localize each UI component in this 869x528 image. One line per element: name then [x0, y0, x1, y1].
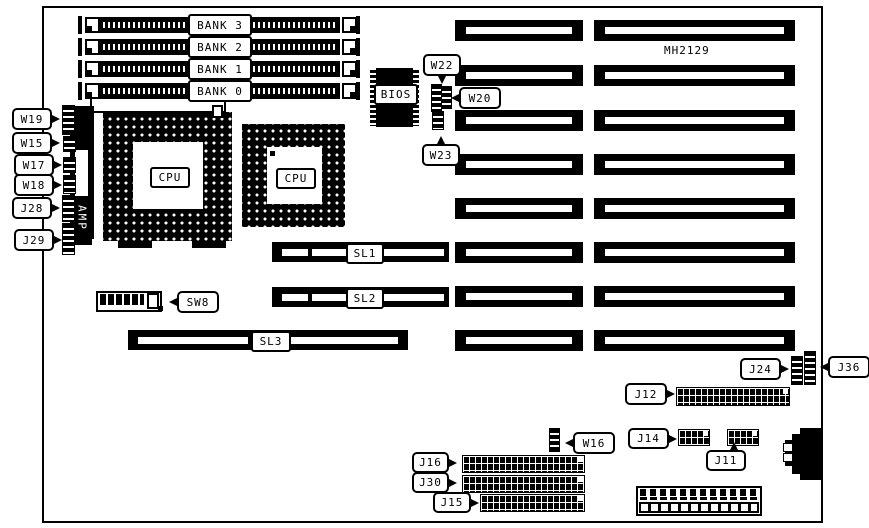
isa-slot — [594, 20, 795, 41]
socket-foot — [118, 241, 152, 248]
slot-stripe — [384, 249, 444, 256]
callout-j12: J12 — [625, 383, 667, 405]
header-j12 — [676, 387, 790, 406]
callout-w18: W18 — [14, 174, 54, 196]
simm-clip — [342, 39, 357, 55]
sl3-label: SL3 — [251, 331, 291, 352]
power-connector-teeth — [640, 489, 758, 496]
pin1-marker — [578, 477, 583, 482]
bank1-label: BANK 1 — [188, 58, 252, 80]
keyboard-connector-notch — [783, 443, 793, 452]
jumper-w15 — [63, 136, 76, 152]
simm-clip — [78, 16, 82, 34]
arrow-icon — [52, 160, 62, 170]
callout-j14: J14 — [628, 428, 669, 449]
jumper-j24 — [791, 356, 803, 385]
jumper-w18 — [63, 175, 76, 194]
isa-slot — [455, 154, 583, 175]
isa-slot — [455, 242, 583, 263]
socket-foot — [72, 239, 92, 245]
arrow-icon — [451, 93, 461, 103]
jumper-j29 — [62, 223, 75, 255]
arrow-icon — [50, 138, 60, 148]
callout-w22: W22 — [423, 54, 461, 76]
simm-slot — [100, 61, 188, 77]
pin1-marker — [578, 457, 583, 462]
arrow-icon — [779, 364, 789, 374]
slot-stripe — [282, 249, 308, 256]
isa-slot — [594, 110, 795, 131]
callout-w15: W15 — [12, 132, 52, 154]
amp-window — [75, 150, 88, 196]
isa-slot — [594, 286, 795, 307]
header-j14 — [678, 429, 710, 446]
dip-switch-mark — [158, 306, 163, 311]
callout-sw8: SW8 — [177, 291, 219, 313]
simm-clip — [85, 39, 100, 55]
bank3-label: BANK 3 — [188, 14, 252, 36]
slot-stripe — [312, 294, 348, 301]
simm-clip — [78, 38, 82, 56]
arrow-icon — [447, 458, 457, 468]
power-connector-dashes — [640, 497, 758, 500]
sl2-label: SL2 — [346, 288, 384, 309]
arrow-icon — [169, 297, 179, 307]
isa-slot — [594, 65, 795, 86]
simm-slot — [100, 39, 188, 55]
slot-stripe — [138, 337, 248, 344]
pin1-dot — [270, 151, 275, 156]
jumper-w23 — [432, 111, 444, 130]
cpu2-label: CPU — [276, 168, 316, 189]
isa-slot — [594, 154, 795, 175]
arrow-icon — [447, 478, 457, 488]
isa-slot — [594, 198, 795, 219]
pin1-marker — [578, 496, 583, 501]
arrow-icon — [469, 498, 479, 508]
socket-foot — [192, 241, 226, 248]
arrow-icon — [665, 389, 675, 399]
callout-j11: J11 — [706, 450, 746, 471]
isa-slot — [455, 330, 583, 351]
bank0-label: BANK 0 — [188, 80, 252, 102]
jumper-w17 — [63, 157, 76, 173]
slot-stripe — [312, 249, 348, 256]
header-j15 — [480, 494, 585, 512]
isa-slot — [455, 110, 583, 131]
pin1-marker — [783, 389, 788, 394]
callout-j24: J24 — [740, 358, 781, 380]
arrow-icon — [50, 203, 60, 213]
callout-j15: J15 — [433, 492, 471, 513]
simm-clip — [78, 82, 82, 100]
isa-slot — [455, 20, 583, 41]
simm-slot — [250, 39, 340, 55]
simm-clip — [78, 60, 82, 78]
callout-j28: J28 — [12, 197, 52, 219]
arrow-icon — [820, 362, 830, 372]
callout-w20: W20 — [459, 87, 501, 109]
keyboard-connector-notch — [783, 453, 793, 462]
bios-label: BIOS — [374, 84, 418, 105]
slot-stripe — [290, 337, 398, 344]
keyboard-connector — [792, 434, 821, 474]
arrow-icon — [667, 434, 677, 444]
board-model-label: MH2129 — [664, 44, 710, 57]
motherboard-diagram: MH2129 BANK 3 BANK 2 BANK 1 BANK 0 CPU C… — [0, 0, 869, 528]
sl1-label: SL1 — [346, 243, 384, 264]
arrow-icon — [437, 74, 447, 84]
callout-j30: J30 — [412, 472, 449, 493]
header-j16 — [462, 455, 585, 473]
simm-slot — [250, 61, 340, 77]
zif-lever-notch — [212, 105, 223, 118]
simm-slot — [250, 83, 340, 99]
power-connector-pins — [639, 502, 759, 513]
power-connector — [636, 486, 762, 516]
isa-slot — [455, 65, 583, 86]
callout-w23: W23 — [422, 144, 460, 166]
simm-clip — [85, 17, 100, 33]
keyboard-connector-flange — [800, 471, 821, 480]
callout-j36: J36 — [828, 356, 869, 378]
callout-w17: W17 — [14, 154, 54, 176]
jumper-w16 — [549, 428, 560, 452]
simm-slot — [250, 17, 340, 33]
jumper-j36 — [804, 351, 816, 385]
pin1-marker — [703, 431, 708, 436]
callout-j29: J29 — [14, 229, 54, 251]
callout-w19: W19 — [12, 108, 52, 130]
slot-stripe — [384, 294, 444, 301]
arrow-icon — [436, 136, 446, 146]
jumper-j28 — [62, 195, 75, 222]
arrow-icon — [565, 438, 575, 448]
isa-slot — [455, 198, 583, 219]
bank2-label: BANK 2 — [188, 36, 252, 58]
callout-j16: J16 — [412, 452, 449, 473]
isa-slot — [594, 330, 795, 351]
header-j30 — [462, 475, 585, 493]
simm-slot — [100, 17, 188, 33]
simm-clip — [342, 17, 357, 33]
simm-clip — [342, 61, 357, 77]
jumper-w19 — [62, 105, 75, 135]
dip-switch-positions — [100, 294, 144, 305]
arrow-icon — [729, 442, 739, 452]
arrow-icon — [52, 180, 62, 190]
cpu1-label: CPU — [150, 167, 190, 188]
simm-clip — [85, 61, 100, 77]
pin1-marker — [752, 431, 757, 436]
slot-stripe — [282, 294, 308, 301]
arrow-icon — [52, 235, 62, 245]
arrow-icon — [50, 114, 60, 124]
isa-slot — [455, 286, 583, 307]
isa-slot — [594, 242, 795, 263]
callout-w16: W16 — [573, 432, 615, 454]
power-pin-row — [641, 504, 757, 511]
simm-clip — [342, 83, 357, 99]
